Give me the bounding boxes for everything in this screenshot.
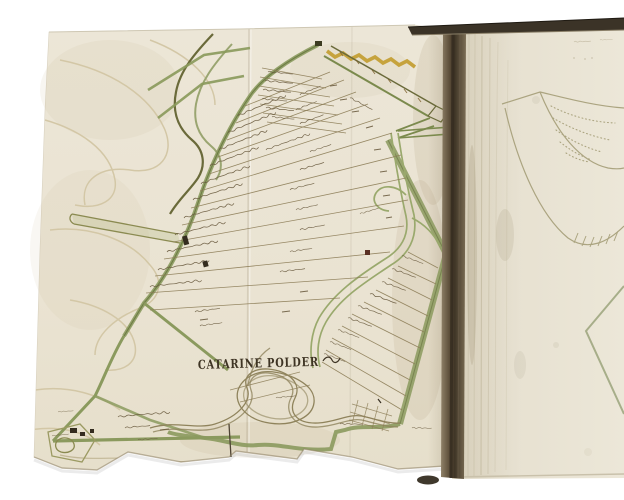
atlas-photo-svg: CATARINE POLDER	[0, 0, 624, 500]
map-sheet: CATARINE POLDER	[30, 25, 453, 473]
photo-of-atlas: CATARINE POLDER	[0, 0, 624, 500]
right-page	[452, 22, 624, 479]
spine-bottom-nub	[417, 476, 439, 485]
map-title: CATARINE POLDER	[198, 354, 319, 372]
